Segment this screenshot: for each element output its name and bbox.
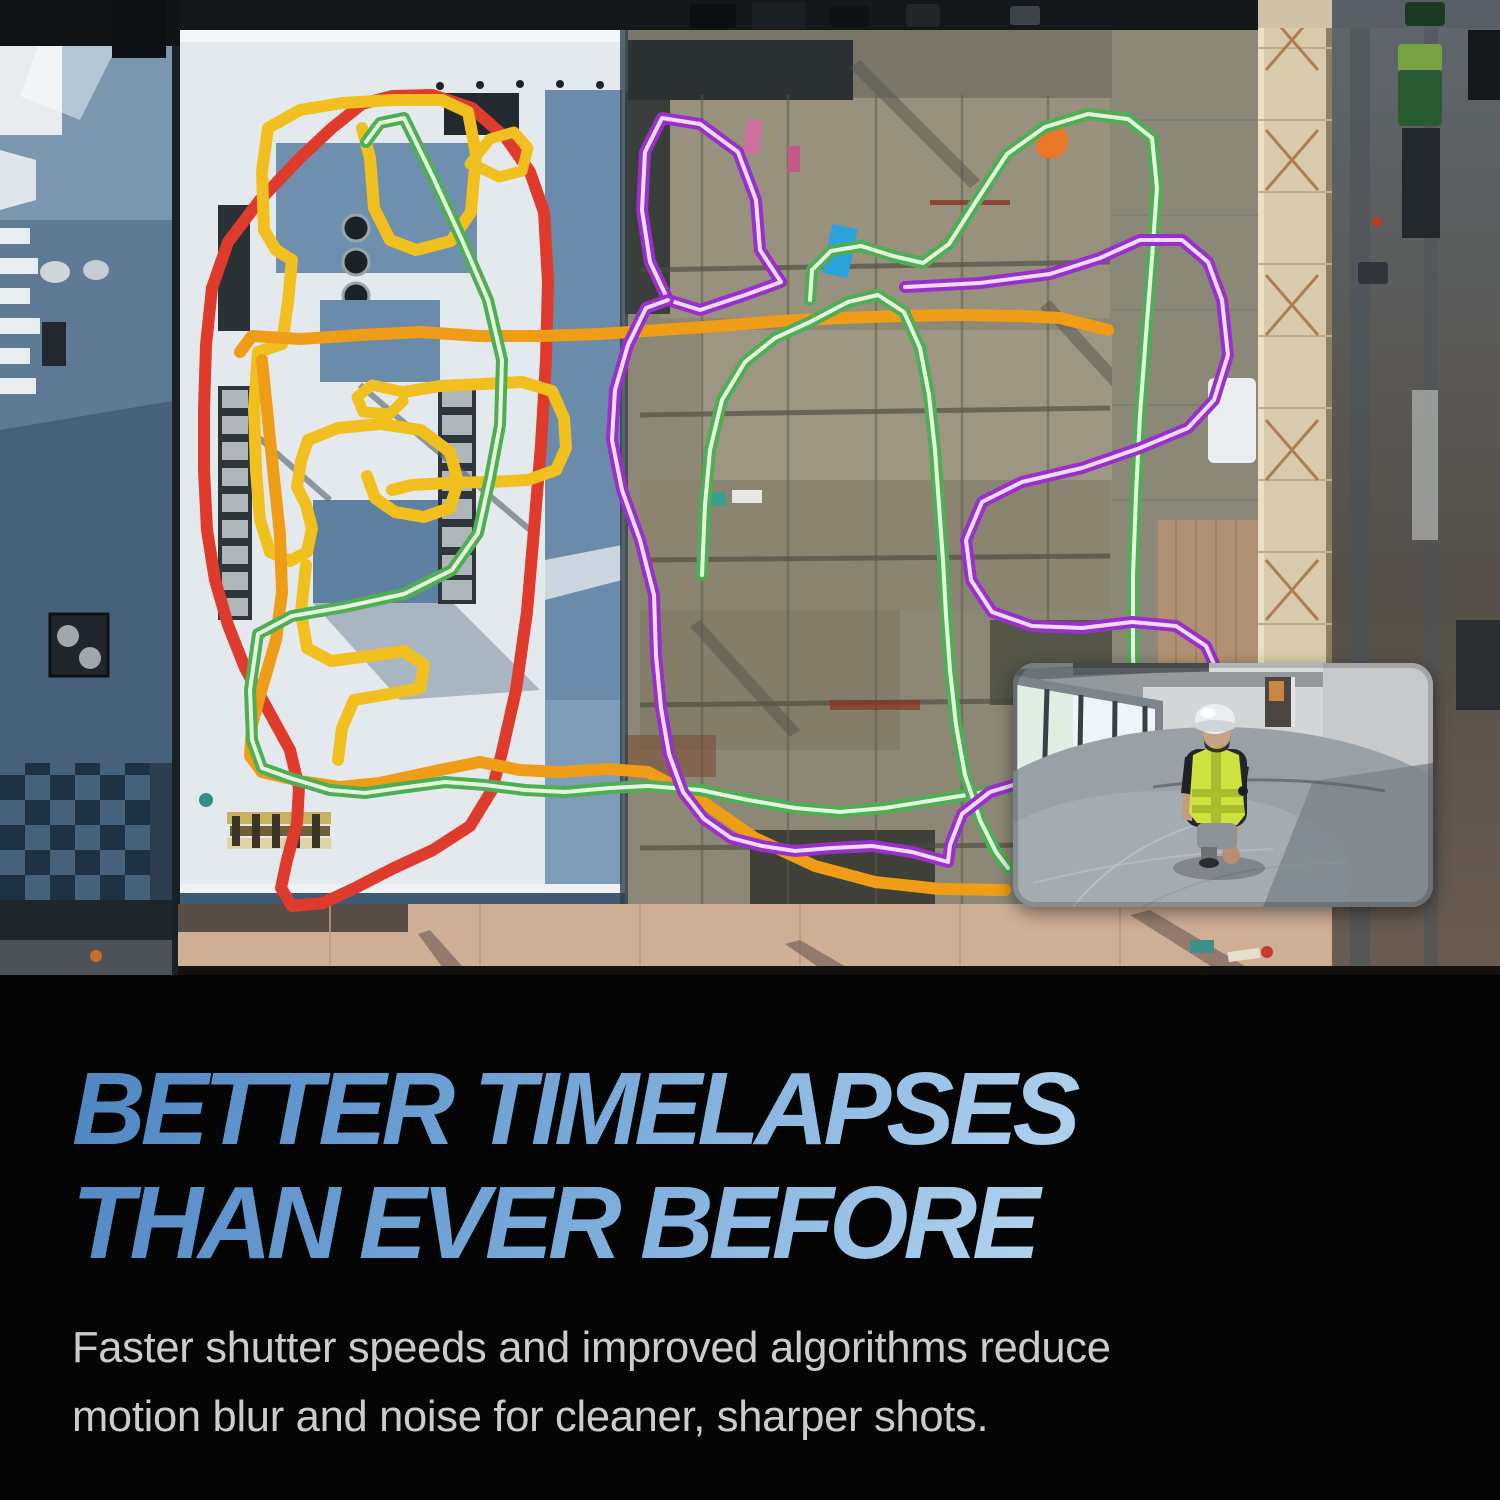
- checker-roof-section: [0, 763, 150, 900]
- subheadline: Faster shutter speeds and improved algor…: [72, 1314, 1111, 1451]
- subheadline-line2: motion blur and noise for cleaner, sharp…: [72, 1393, 988, 1441]
- lumber-stack: [227, 812, 331, 849]
- dome-vent: [40, 261, 70, 283]
- inset-photo: [1013, 663, 1433, 907]
- left-building-roof: [0, 28, 180, 975]
- door-opening: [1265, 677, 1295, 727]
- safety-vest: [1189, 745, 1245, 825]
- headline-line1: BETTER TIMELAPSES: [72, 1051, 1076, 1166]
- fan-unit: [50, 614, 108, 676]
- pants: [1197, 823, 1237, 849]
- wristwatch: [1238, 786, 1248, 796]
- roof-vent-box: [42, 322, 66, 366]
- caption-block: BETTER TIMELAPSES THAN EVER BEFORE Faste…: [72, 1052, 1442, 1281]
- subheadline-line1: Faster shutter speeds and improved algor…: [72, 1324, 1111, 1372]
- marketing-graphic: BETTER TIMELAPSES THAN EVER BEFORE Faste…: [0, 0, 1500, 1500]
- dome-vent: [83, 260, 109, 280]
- bottom-pavement: [178, 904, 1500, 975]
- green-machine: [1398, 44, 1442, 72]
- trailer: [1402, 128, 1440, 238]
- headline-line2: THAN EVER BEFORE: [72, 1165, 1035, 1280]
- headline: BETTER TIMELAPSES THAN EVER BEFORE: [72, 1052, 1428, 1281]
